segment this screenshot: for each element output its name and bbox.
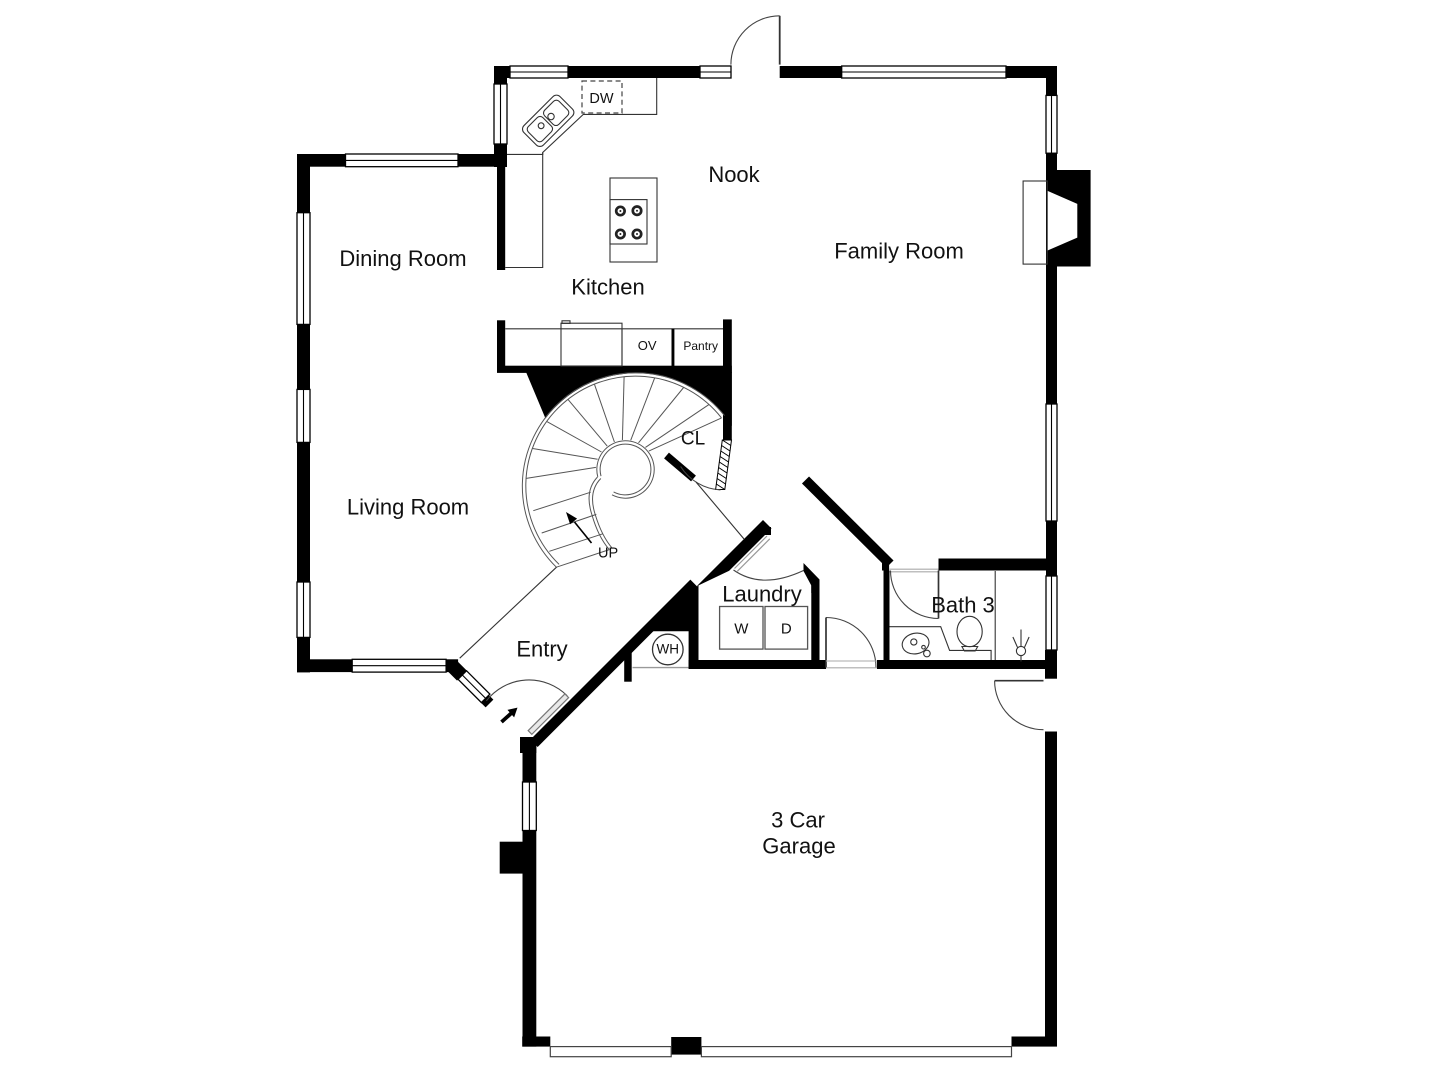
svg-text:UP: UP bbox=[598, 546, 618, 562]
svg-text:D: D bbox=[781, 621, 792, 638]
svg-text:Kitchen: Kitchen bbox=[571, 275, 644, 300]
svg-text:OV: OV bbox=[638, 338, 657, 353]
svg-text:Entry: Entry bbox=[516, 637, 567, 662]
svg-text:Family Room: Family Room bbox=[834, 239, 964, 264]
svg-text:DW: DW bbox=[589, 91, 613, 107]
svg-text:W: W bbox=[734, 621, 749, 638]
svg-text:Pantry: Pantry bbox=[683, 339, 718, 353]
svg-text:Bath 3: Bath 3 bbox=[931, 593, 995, 618]
svg-text:Laundry: Laundry bbox=[722, 582, 802, 607]
svg-text:Nook: Nook bbox=[708, 162, 760, 187]
svg-text:Living Room: Living Room bbox=[347, 495, 469, 520]
svg-text:Dining Room: Dining Room bbox=[339, 246, 466, 271]
svg-text:3 Car: 3 Car bbox=[771, 808, 825, 833]
svg-text:CL: CL bbox=[681, 429, 705, 450]
svg-text:Garage: Garage bbox=[762, 834, 835, 859]
svg-text:WH: WH bbox=[657, 642, 680, 657]
